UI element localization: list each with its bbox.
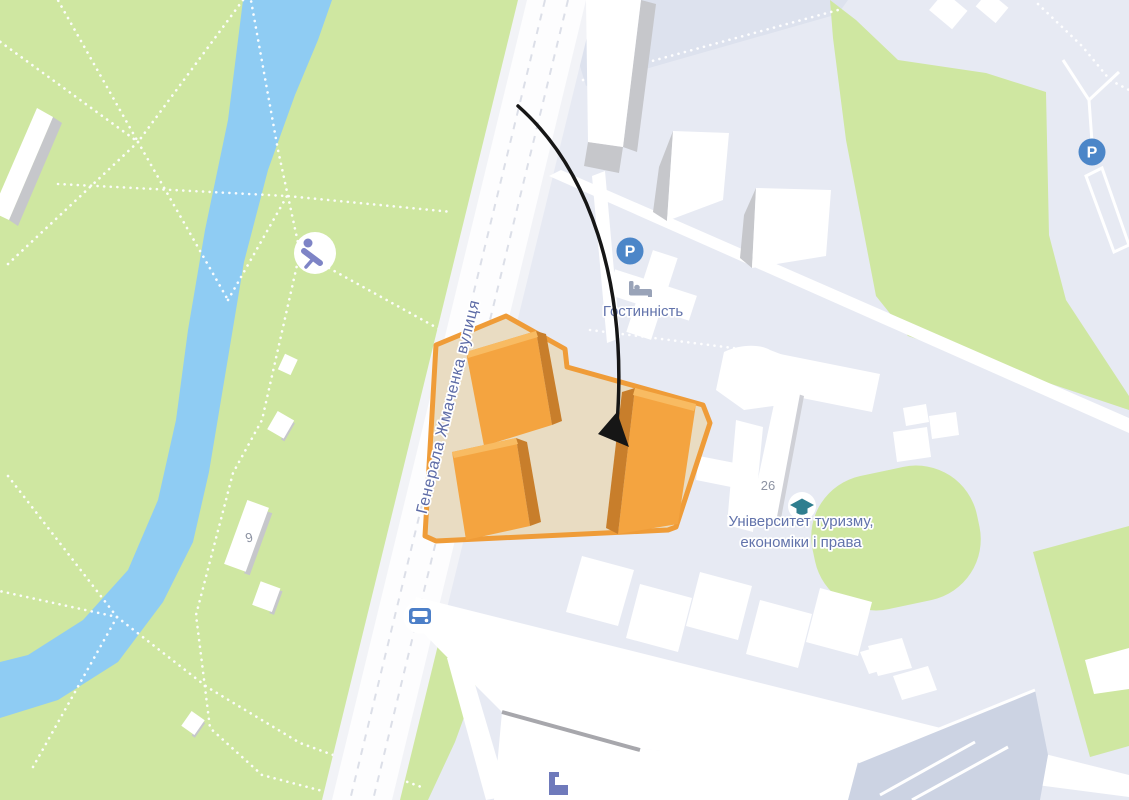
building — [893, 427, 931, 462]
map-viewport[interactable]: P P — [0, 0, 1129, 800]
playground-icon[interactable] — [294, 232, 336, 274]
map-canvas[interactable]: P P — [0, 0, 1129, 800]
building — [929, 412, 959, 439]
university-label-line-2[interactable]: економіки і права — [740, 534, 862, 551]
building — [752, 188, 831, 268]
university-label-line-1[interactable]: Університет туризму, — [728, 513, 873, 530]
car-icon[interactable] — [404, 601, 437, 634]
parking-symbol: P — [625, 244, 636, 261]
parking-symbol: P — [1087, 145, 1098, 162]
parking-icon[interactable]: P — [617, 238, 644, 265]
building-number-26: 26 — [761, 478, 775, 493]
parking-icon[interactable]: P — [1079, 139, 1106, 166]
